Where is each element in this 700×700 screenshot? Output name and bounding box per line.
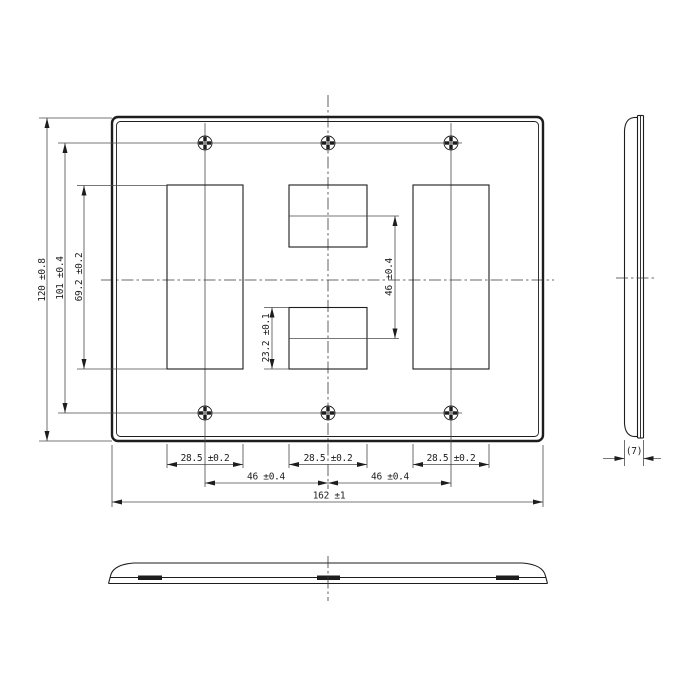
dim-opening-width-right-label: 28.5 ±0.2 <box>427 453 476 464</box>
plate-inner-edge <box>117 122 539 437</box>
center-dimensions: 46 ±0.4 23.2 ±0.1 <box>261 216 399 369</box>
plate-outer-edge <box>112 117 543 441</box>
dim-gang-pitch-right-label: 46 ±0.4 <box>371 472 410 483</box>
dim-overall-width-label: 162 ±1 <box>313 491 346 502</box>
bottom-view <box>109 556 548 601</box>
mounting-tab-center <box>317 576 340 581</box>
dim-opening-height-label: 69.2 ±0.2 <box>74 253 85 302</box>
left-dimensions: 120 ±0.8 101 ±0.4 69.2 ±0.2 <box>37 118 167 441</box>
mounting-tab-right <box>496 576 519 581</box>
mounting-tab-left <box>138 576 162 581</box>
dim-center-opening-pitch-label: 46 ±0.4 <box>384 257 395 296</box>
front-view <box>58 95 554 489</box>
side-front-face <box>625 118 635 437</box>
dim-small-opening-height-label: 23.2 ±0.1 <box>261 313 272 362</box>
dim-overall-height-label: 120 ±0.8 <box>37 258 48 302</box>
dimension-drawing: 120 ±0.8 101 ±0.4 69.2 ±0.2 46 ±0.4 23.2… <box>0 0 700 700</box>
drawing-canvas: 120 ±0.8 101 ±0.4 69.2 ±0.2 46 ±0.4 23.2… <box>0 0 700 700</box>
dim-opening-width-left-label: 28.5 ±0.2 <box>181 453 230 464</box>
side-view: (7) <box>603 116 661 467</box>
dim-gang-pitch-left-label: 46 ±0.4 <box>247 472 286 483</box>
dim-screw-pitch-vertical-label: 101 ±0.4 <box>55 256 66 300</box>
dim-thickness-label: (7) <box>626 446 642 457</box>
dim-opening-width-center-label: 28.5 ±0.2 <box>304 453 353 464</box>
bottom-dimensions: 28.5 ±0.2 28.5 ±0.2 28.5 ±0.2 46 ±0.4 46… <box>112 444 543 507</box>
